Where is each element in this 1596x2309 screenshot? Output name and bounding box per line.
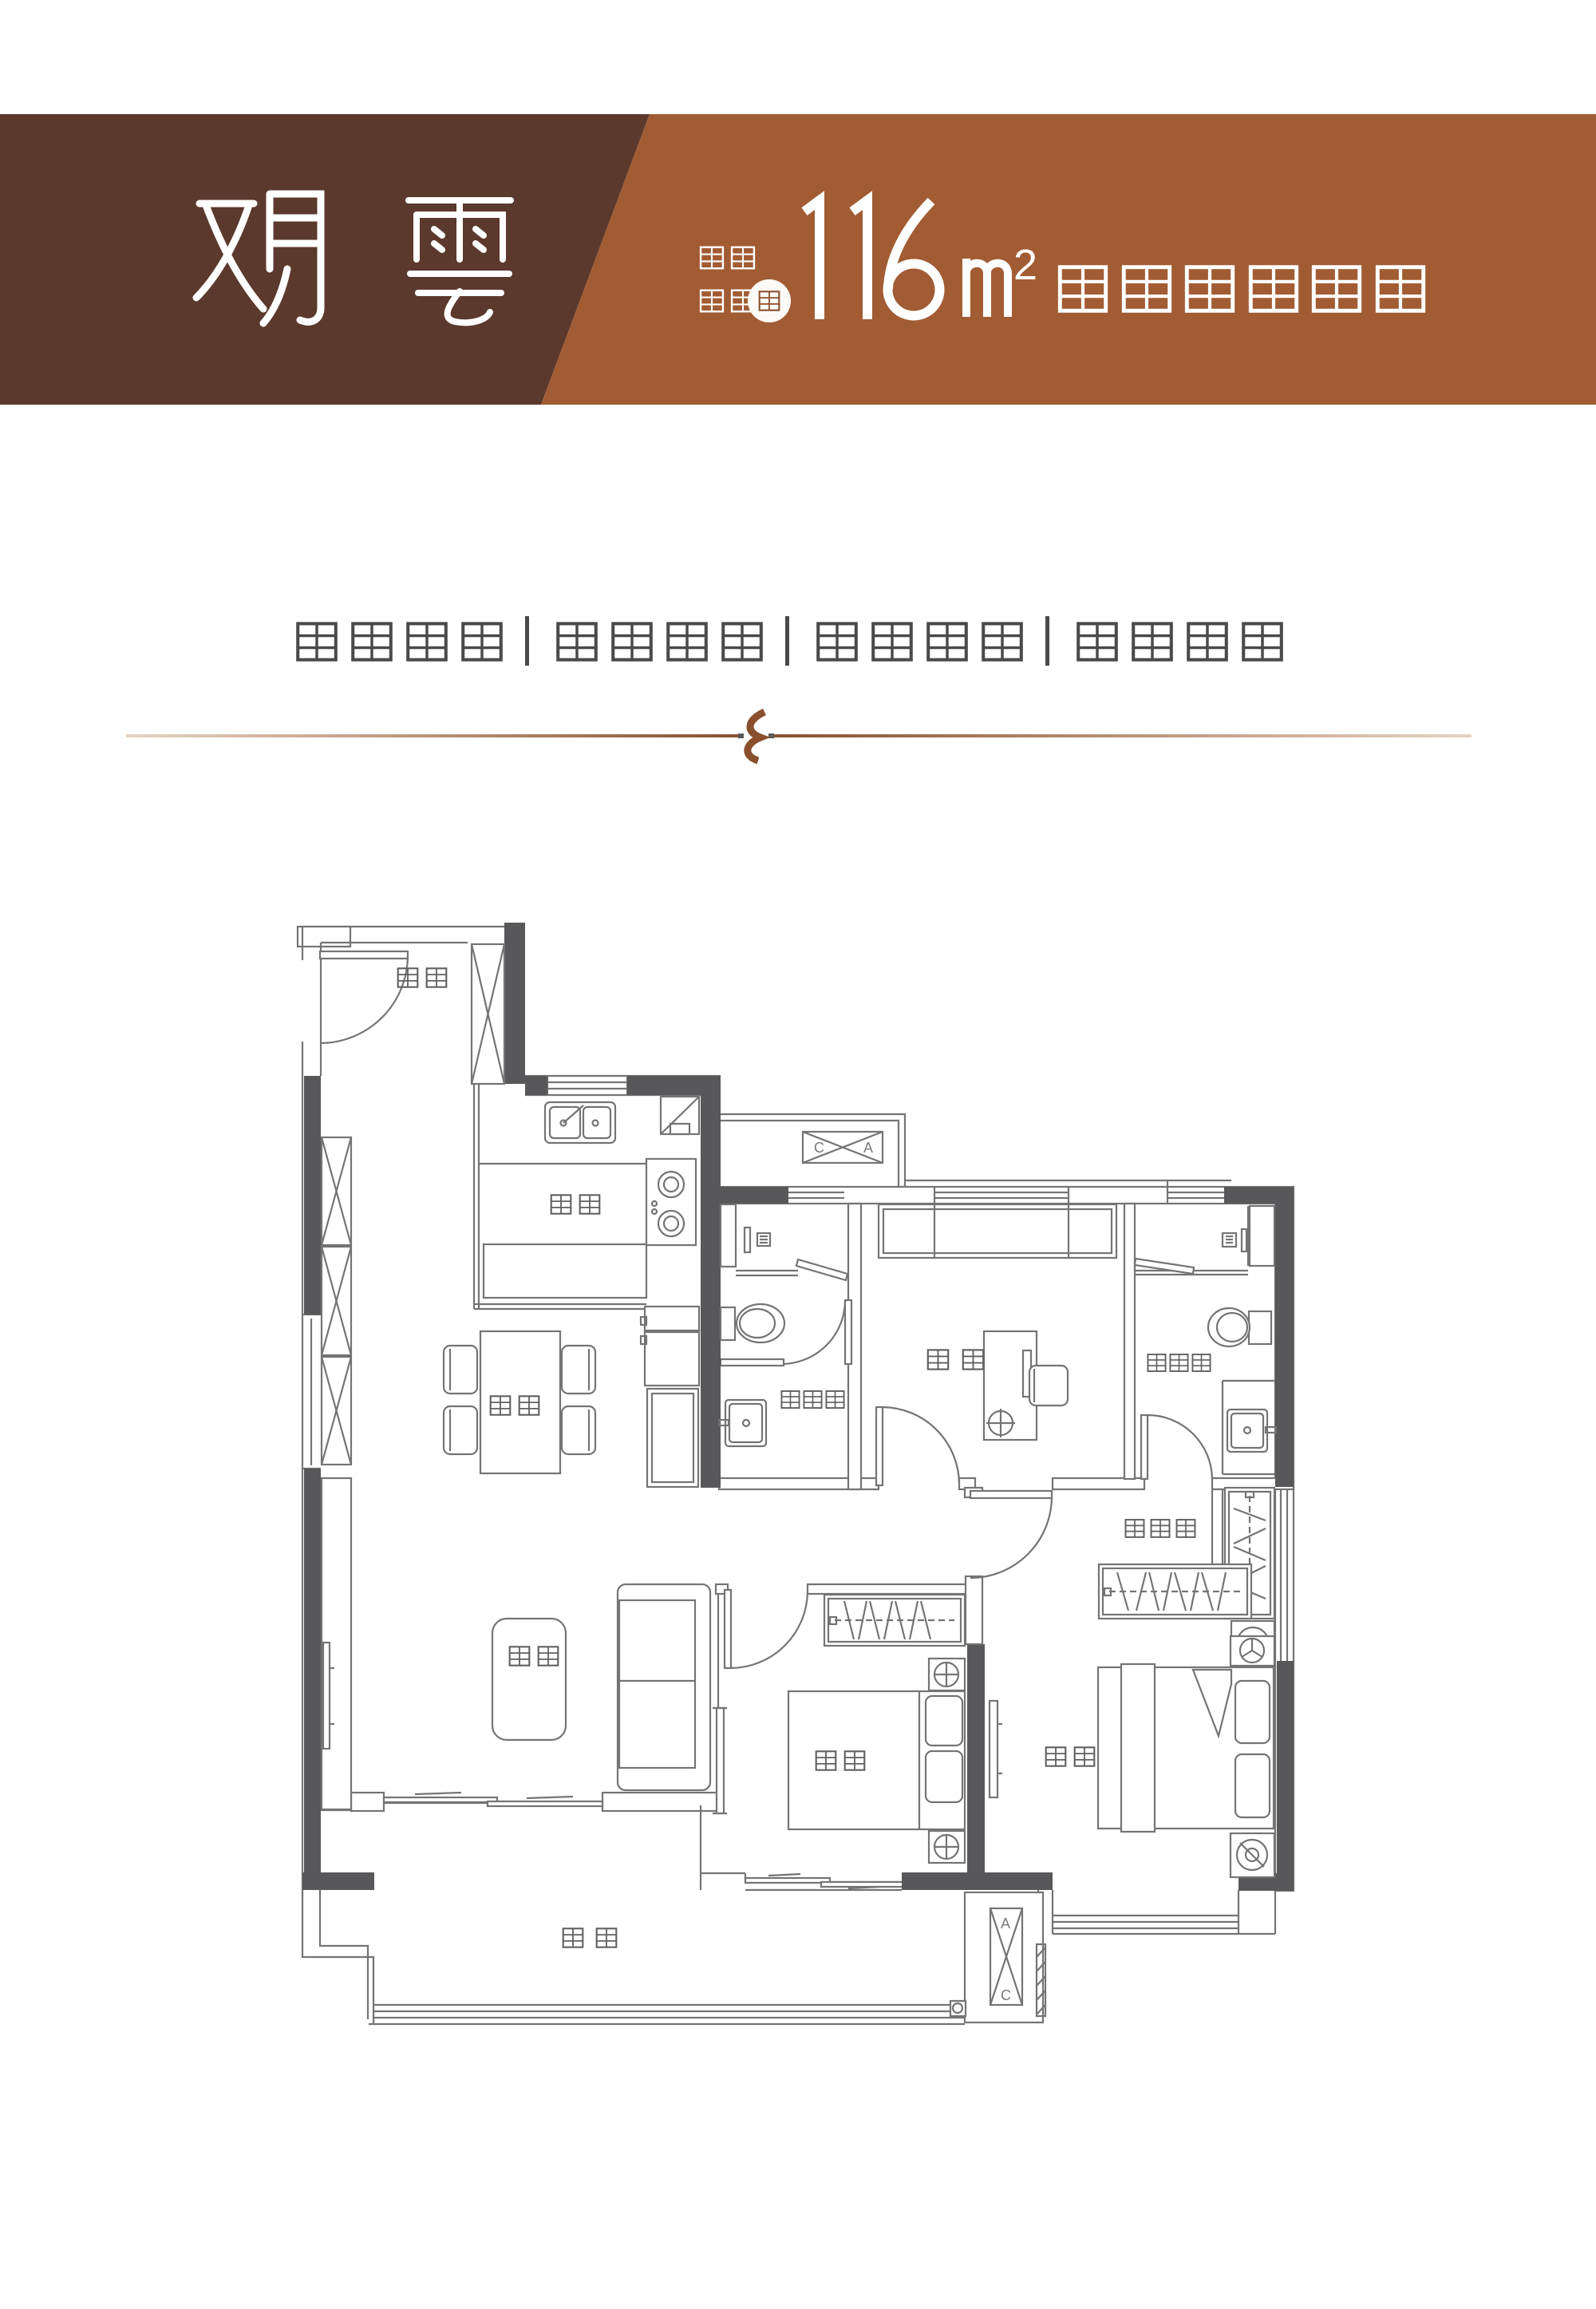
svg-text:C: C (814, 1140, 824, 1156)
svg-text:C: C (1001, 1987, 1011, 2003)
svg-text:A: A (1001, 1916, 1010, 1931)
svg-text:2: 2 (1013, 241, 1037, 289)
svg-text:A: A (863, 1140, 873, 1156)
